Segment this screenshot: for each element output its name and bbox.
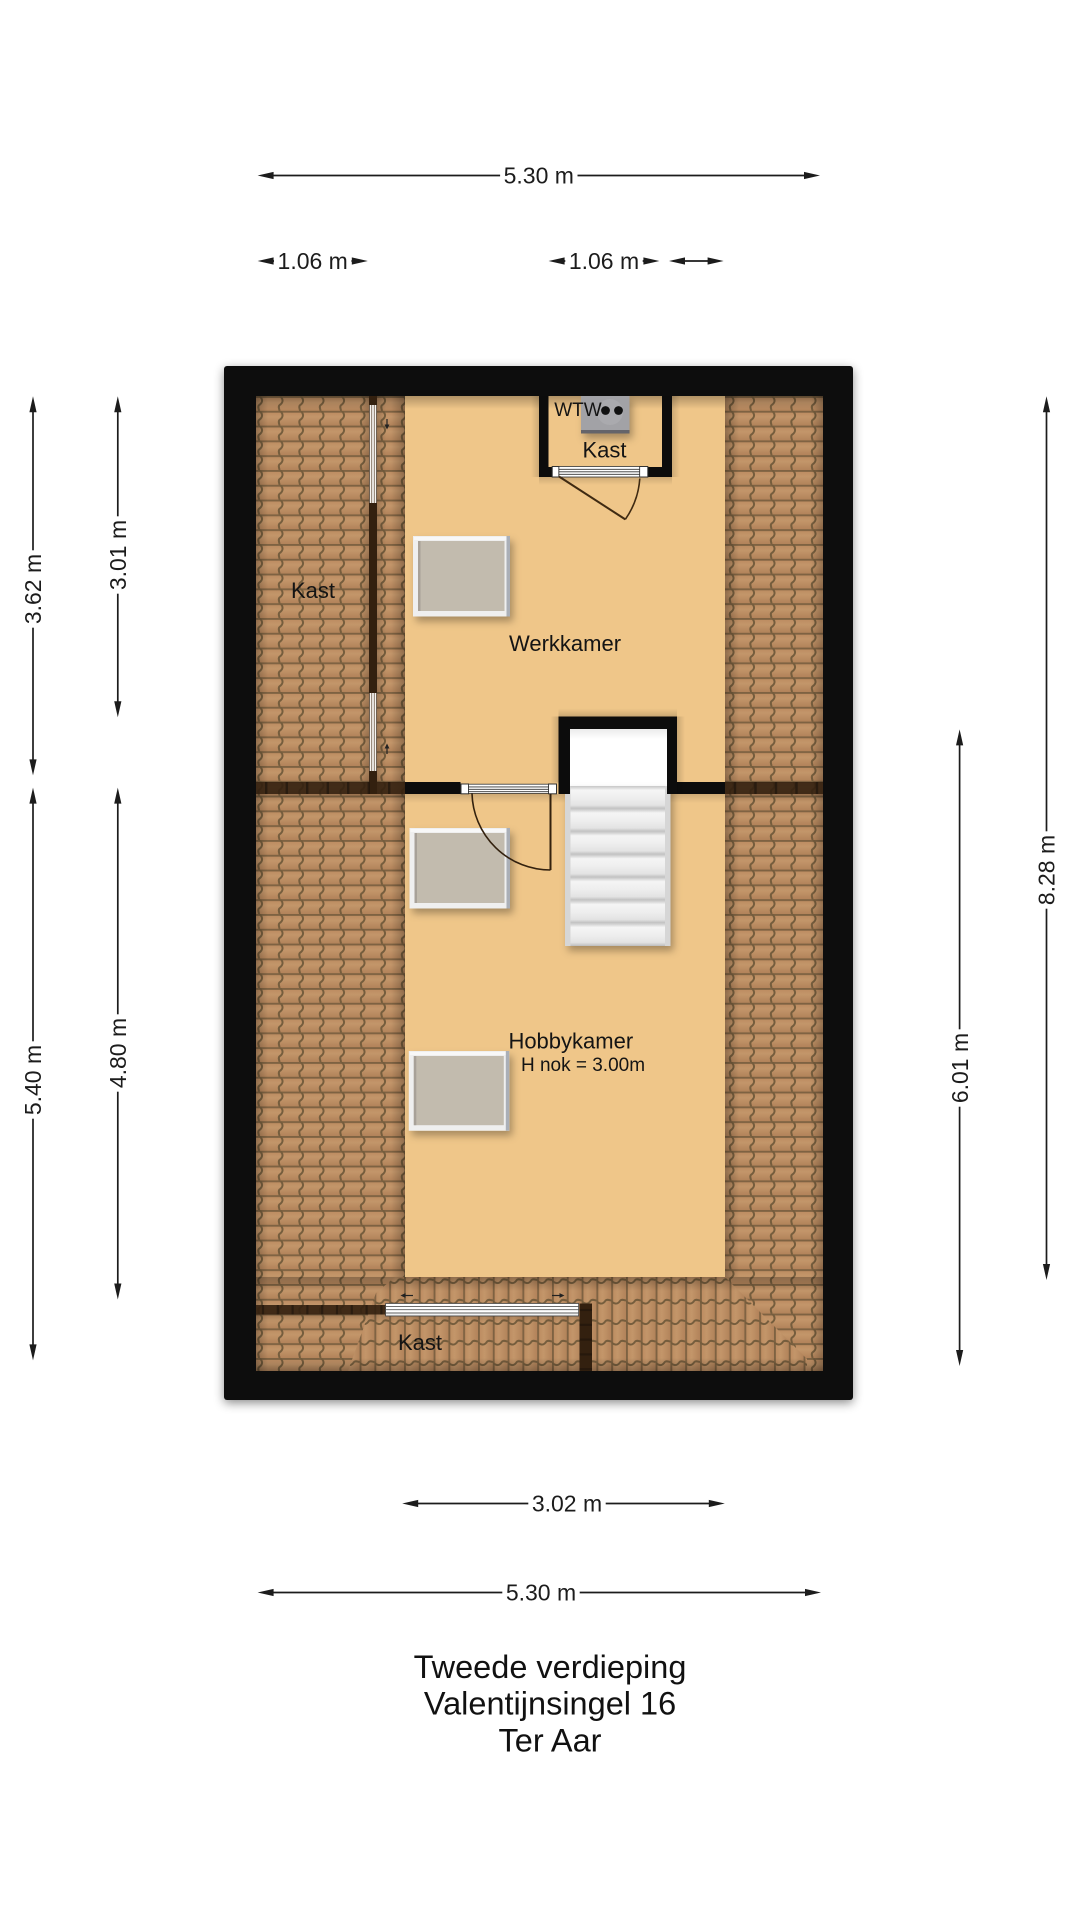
svg-text:Hobbykamer: Hobbykamer bbox=[508, 1029, 633, 1054]
svg-text:1.06 m: 1.06 m bbox=[569, 248, 639, 274]
svg-text:Kast: Kast bbox=[398, 1330, 442, 1355]
svg-text:Kast: Kast bbox=[582, 438, 626, 463]
svg-text:6.01 m: 6.01 m bbox=[947, 1033, 973, 1103]
svg-text:5.40 m: 5.40 m bbox=[20, 1045, 46, 1115]
svg-text:3.02 m: 3.02 m bbox=[532, 1491, 602, 1517]
svg-text:Werkkamer: Werkkamer bbox=[509, 631, 621, 656]
svg-text:Ter Aar: Ter Aar bbox=[499, 1722, 602, 1758]
svg-text:Tweede verdieping: Tweede verdieping bbox=[414, 1649, 687, 1685]
svg-text:5.30 m: 5.30 m bbox=[504, 163, 574, 189]
svg-text:5.30 m: 5.30 m bbox=[506, 1580, 576, 1606]
svg-text:1.06 m: 1.06 m bbox=[278, 248, 348, 274]
svg-text:Valentijnsingel 16: Valentijnsingel 16 bbox=[424, 1686, 676, 1722]
svg-text:WTW: WTW bbox=[554, 400, 602, 421]
svg-text:8.28 m: 8.28 m bbox=[1034, 835, 1060, 905]
svg-text:4.80 m: 4.80 m bbox=[105, 1018, 131, 1088]
svg-text:H nok = 3.00m: H nok = 3.00m bbox=[521, 1055, 645, 1076]
svg-text:3.01 m: 3.01 m bbox=[105, 520, 131, 590]
svg-text:3.62 m: 3.62 m bbox=[20, 554, 46, 624]
svg-text:Kast: Kast bbox=[291, 578, 335, 603]
